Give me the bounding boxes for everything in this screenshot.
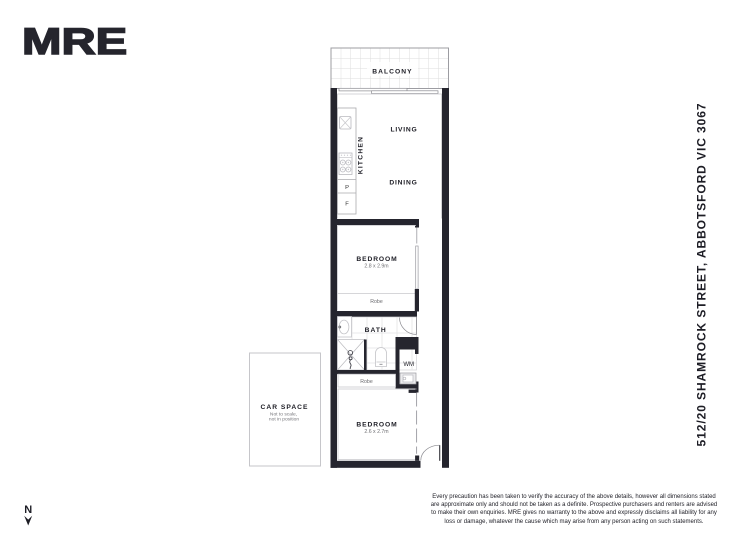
svg-text:2.8 x 2.9m: 2.8 x 2.9m bbox=[364, 264, 388, 270]
svg-text:BATH: BATH bbox=[365, 327, 387, 334]
svg-text:N: N bbox=[24, 504, 32, 516]
svg-text:BEDROOM: BEDROOM bbox=[356, 256, 397, 263]
svg-text:KITCHEN: KITCHEN bbox=[358, 136, 365, 174]
svg-text:Robe: Robe bbox=[370, 299, 383, 305]
svg-text:WM: WM bbox=[403, 362, 414, 368]
svg-text:BEDROOM: BEDROOM bbox=[356, 422, 397, 429]
svg-text:2.6 x 2.7m: 2.6 x 2.7m bbox=[364, 429, 388, 435]
svg-text:BALCONY: BALCONY bbox=[372, 68, 412, 75]
svg-text:LIVING: LIVING bbox=[390, 127, 417, 134]
svg-text:not in position: not in position bbox=[269, 416, 299, 422]
svg-text:DINING: DINING bbox=[389, 180, 417, 187]
svg-text:Robe: Robe bbox=[360, 379, 373, 385]
svg-text:P: P bbox=[345, 185, 349, 191]
svg-text:F: F bbox=[345, 202, 349, 208]
svg-text:CAR SPACE: CAR SPACE bbox=[261, 404, 309, 411]
